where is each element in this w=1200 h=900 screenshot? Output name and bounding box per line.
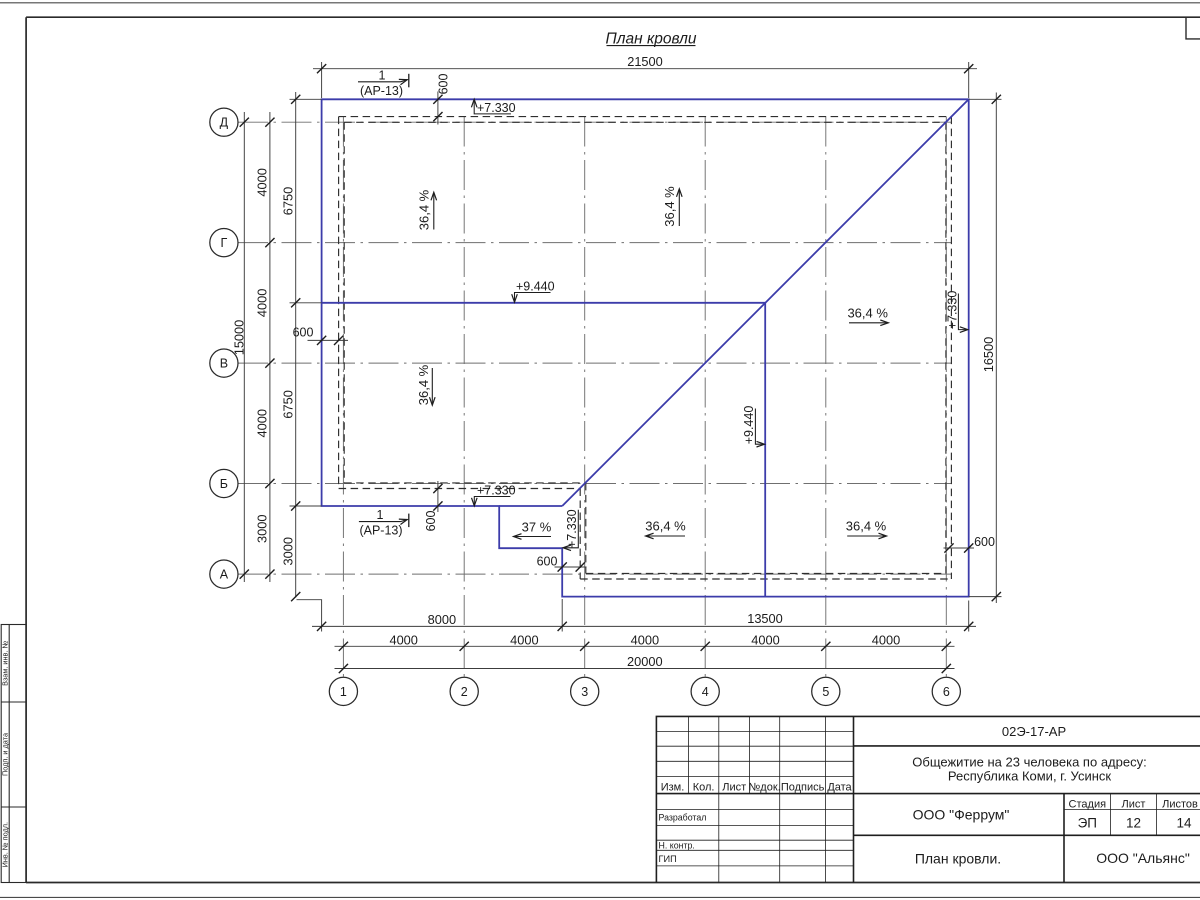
svg-text:Кол.: Кол.	[693, 782, 715, 794]
svg-text:+7.330: +7.330	[945, 291, 959, 330]
svg-text:ЭП: ЭП	[1078, 816, 1097, 831]
svg-text:(АР-13): (АР-13)	[360, 84, 403, 98]
svg-text:1: 1	[377, 508, 384, 522]
svg-text:36,4 %: 36,4 %	[417, 189, 432, 230]
svg-text:Г: Г	[221, 236, 228, 250]
svg-text:ГИП: ГИП	[659, 854, 677, 864]
svg-text:14: 14	[1176, 816, 1192, 831]
svg-text:Н. контр.: Н. контр.	[659, 841, 695, 851]
svg-text:36,4 %: 36,4 %	[662, 186, 677, 227]
svg-text:4000: 4000	[510, 633, 538, 648]
svg-text:В: В	[220, 357, 228, 371]
svg-text:3000: 3000	[280, 537, 295, 565]
svg-text:Изм.: Изм.	[661, 782, 685, 794]
svg-text:8000: 8000	[428, 612, 456, 627]
svg-text:15000: 15000	[232, 320, 247, 356]
svg-text:4000: 4000	[255, 289, 270, 317]
svg-text:Взам. инв. №: Взам. инв. №	[0, 641, 9, 686]
svg-text:Б: Б	[220, 477, 228, 491]
svg-text:№док.: №док.	[748, 782, 780, 794]
svg-text:Республика Коми, г. Усинск: Республика Коми, г. Усинск	[948, 769, 1111, 784]
svg-text:3000: 3000	[255, 515, 270, 543]
svg-text:4000: 4000	[389, 633, 417, 648]
svg-text:(АР-13): (АР-13)	[359, 523, 402, 537]
svg-text:Лист: Лист	[1122, 799, 1146, 811]
svg-text:2: 2	[461, 685, 468, 699]
svg-text:План кровли.: План кровли.	[915, 851, 1001, 867]
svg-text:36,4 %: 36,4 %	[847, 306, 888, 321]
svg-text:5: 5	[822, 685, 829, 699]
svg-text:Инв. № подл.: Инв. № подл.	[0, 822, 9, 867]
svg-text:Стадия: Стадия	[1069, 799, 1107, 811]
svg-text:Д: Д	[220, 115, 229, 129]
svg-text:А: А	[220, 568, 229, 582]
svg-text:600: 600	[437, 74, 451, 95]
svg-text:ООО "Феррум": ООО "Феррум"	[913, 807, 1010, 823]
svg-text:1: 1	[379, 69, 386, 83]
svg-text:+7.330: +7.330	[565, 509, 579, 548]
svg-text:600: 600	[424, 511, 438, 532]
svg-text:36,4 %: 36,4 %	[846, 519, 887, 534]
svg-text:4000: 4000	[255, 168, 270, 196]
svg-text:1: 1	[340, 685, 347, 699]
svg-text:+7.330: +7.330	[477, 483, 516, 497]
svg-text:4000: 4000	[872, 633, 900, 648]
svg-text:12: 12	[1126, 816, 1141, 831]
svg-text:4: 4	[702, 685, 709, 699]
svg-text:Дата: Дата	[827, 782, 852, 794]
svg-text:+9.440: +9.440	[742, 406, 756, 445]
svg-text:4000: 4000	[631, 633, 659, 648]
svg-text:600: 600	[293, 326, 314, 340]
svg-text:6750: 6750	[280, 390, 295, 418]
svg-text:4000: 4000	[255, 409, 270, 437]
svg-text:Общежитие на 23 человека по ад: Общежитие на 23 человека по адресу:	[912, 755, 1146, 770]
svg-text:37 %: 37 %	[522, 519, 552, 534]
svg-text:13500: 13500	[747, 611, 783, 626]
svg-text:02Э-17-АР: 02Э-17-АР	[1002, 724, 1066, 739]
svg-text:4000: 4000	[751, 633, 779, 648]
svg-text:Листов: Листов	[1162, 799, 1198, 811]
svg-text:+7.330: +7.330	[477, 101, 516, 115]
svg-text:3: 3	[581, 685, 588, 699]
svg-text:Подп. и дата: Подп. и дата	[0, 732, 9, 776]
svg-text:600: 600	[537, 555, 558, 569]
svg-text:Разработал: Разработал	[659, 813, 707, 823]
svg-text:20000: 20000	[627, 654, 663, 669]
svg-text:+9.440: +9.440	[516, 279, 555, 293]
svg-text:Лист: Лист	[722, 782, 746, 794]
svg-text:16500: 16500	[981, 337, 996, 373]
svg-text:Подпись: Подпись	[781, 782, 825, 794]
svg-text:21500: 21500	[627, 54, 663, 69]
svg-text:ООО "Альянс": ООО "Альянс"	[1096, 850, 1190, 866]
svg-text:6: 6	[943, 685, 950, 699]
svg-text:6750: 6750	[280, 187, 295, 215]
svg-text:36,4 %: 36,4 %	[645, 519, 686, 534]
svg-text:План кровли: План кровли	[606, 30, 697, 47]
svg-text:36,4 %: 36,4 %	[416, 364, 431, 405]
svg-text:600: 600	[974, 535, 995, 549]
